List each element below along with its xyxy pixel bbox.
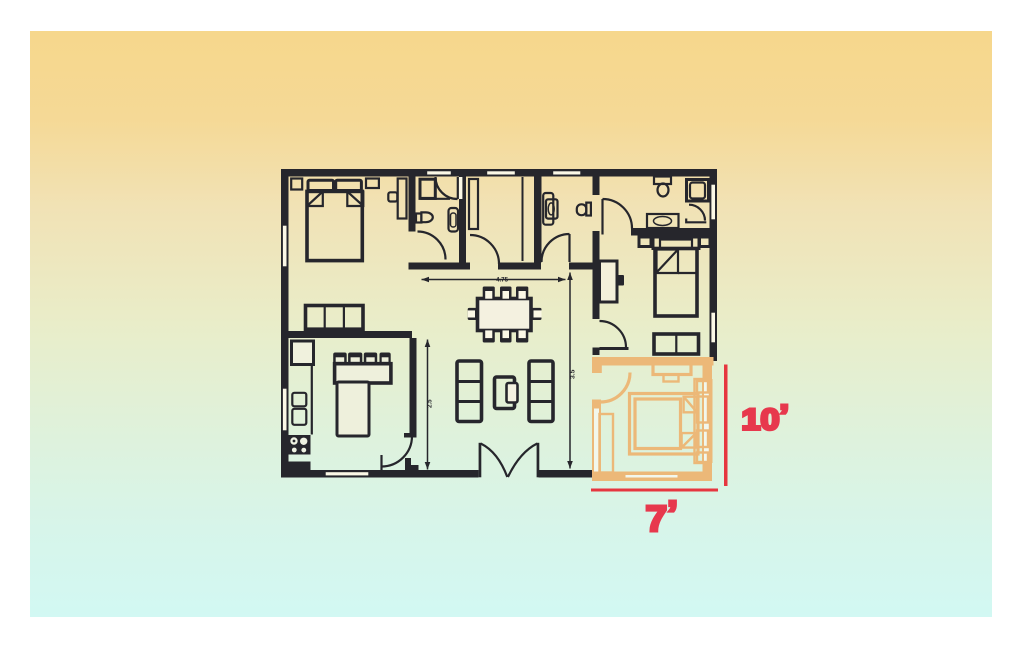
svg-text:7’: 7’	[646, 493, 678, 538]
svg-text:3.5: 3.5	[570, 369, 577, 379]
svg-text:2.5: 2.5	[427, 399, 434, 408]
svg-text:4.75: 4.75	[496, 277, 509, 284]
svg-text:10’: 10’	[742, 398, 790, 436]
